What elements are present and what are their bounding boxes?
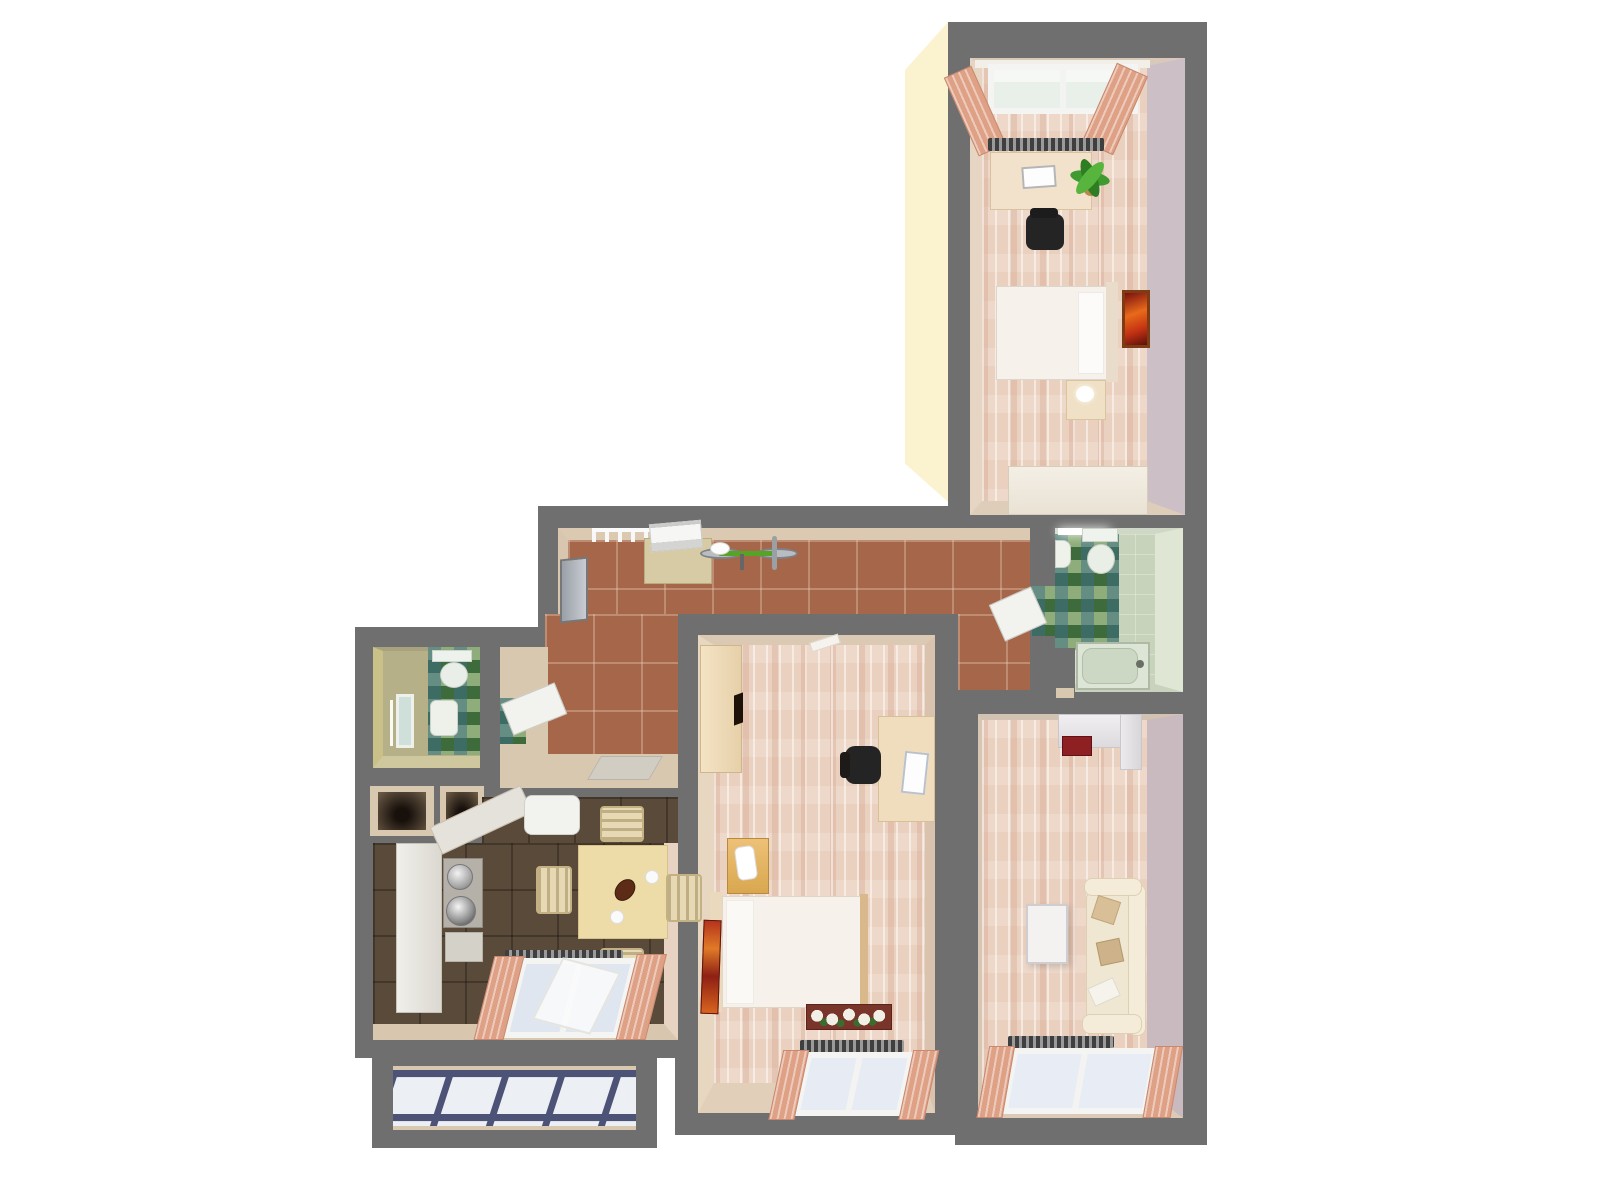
bicycle-crank <box>740 554 744 570</box>
bathtub-faucet <box>1136 660 1144 668</box>
bathroom-partition-cap <box>1056 688 1074 698</box>
office-chair-back-bedroom-top <box>1030 208 1058 218</box>
window-bedroom-center <box>783 1052 925 1116</box>
radiator-bedroom-top <box>988 138 1104 151</box>
sofa-pillow <box>1096 938 1124 966</box>
balcony-frame <box>393 1066 636 1130</box>
bicycle-saddle <box>710 542 730 555</box>
coffee-table <box>1026 904 1068 964</box>
bathtub-basin <box>1082 648 1138 684</box>
office-chair-bedroom-center <box>845 746 881 784</box>
headboard-bedroom-top <box>1106 282 1118 382</box>
wall-hall-top <box>538 506 950 528</box>
printer-on-cabinet <box>649 520 703 552</box>
radiator-living <box>1008 1036 1114 1048</box>
wc-mirror <box>396 694 414 748</box>
bathroom-partition-wall <box>1055 648 1075 692</box>
fridge <box>524 795 580 835</box>
laptop-bedroom-center <box>901 751 929 795</box>
office-chair-bedroom-top <box>1026 214 1064 250</box>
wc-sink <box>430 700 458 736</box>
niche-1-recess <box>378 792 426 830</box>
wc-toilet-tank <box>432 650 472 662</box>
pillow-bedroom-top <box>1078 292 1104 374</box>
balcony-tile-floor <box>393 1070 636 1126</box>
pot-large <box>446 896 476 926</box>
office-chair-back-bedroom-center <box>840 752 850 778</box>
exterior-wall-face <box>905 22 948 502</box>
sofa-armrest-top <box>1084 878 1142 896</box>
rug-bedroom-center <box>700 920 721 1015</box>
bathroom-toilet-tank <box>1082 528 1118 542</box>
pot-small <box>447 864 473 890</box>
wc-mirror-light <box>390 700 393 746</box>
window-bedroom-center-frame <box>793 1052 915 1116</box>
bicycle-handlebar <box>772 536 777 570</box>
plate <box>610 910 624 924</box>
dining-chair-left <box>536 866 572 914</box>
bed-rail-bedroom-center <box>860 894 868 1010</box>
kitchen-base-cabinet <box>445 932 483 962</box>
kitchen-counter <box>396 843 442 1013</box>
lamp-bedroom-top <box>1076 386 1094 402</box>
window-living <box>989 1048 1171 1114</box>
plate <box>645 870 659 884</box>
sofa-armrest-bottom <box>1082 1014 1142 1034</box>
wall-painting <box>1122 290 1150 348</box>
flower-box <box>806 1004 892 1030</box>
wc-toilet-bowl <box>440 662 468 688</box>
red-book <box>1062 736 1092 756</box>
wardrobe-handle <box>734 692 743 725</box>
floor-plan-render <box>0 0 1600 1200</box>
dining-chair-right <box>666 874 702 922</box>
window-kitchen <box>478 958 662 1038</box>
dining-chair-top <box>600 806 644 842</box>
window-living-frame <box>1001 1048 1159 1114</box>
entry-door <box>560 557 588 624</box>
potted-plant <box>1068 156 1112 200</box>
wall-shelf-return <box>1120 714 1142 770</box>
laptop-bedroom-top <box>1021 165 1056 189</box>
radiator-bedroom-center <box>800 1040 904 1052</box>
dresser-bedroom-top <box>1008 466 1148 515</box>
floor-hall-lower <box>545 614 678 762</box>
pillow-bedroom-center <box>726 900 754 1004</box>
bathroom-sink <box>1055 540 1071 568</box>
bathroom-toilet-bowl <box>1087 544 1115 574</box>
